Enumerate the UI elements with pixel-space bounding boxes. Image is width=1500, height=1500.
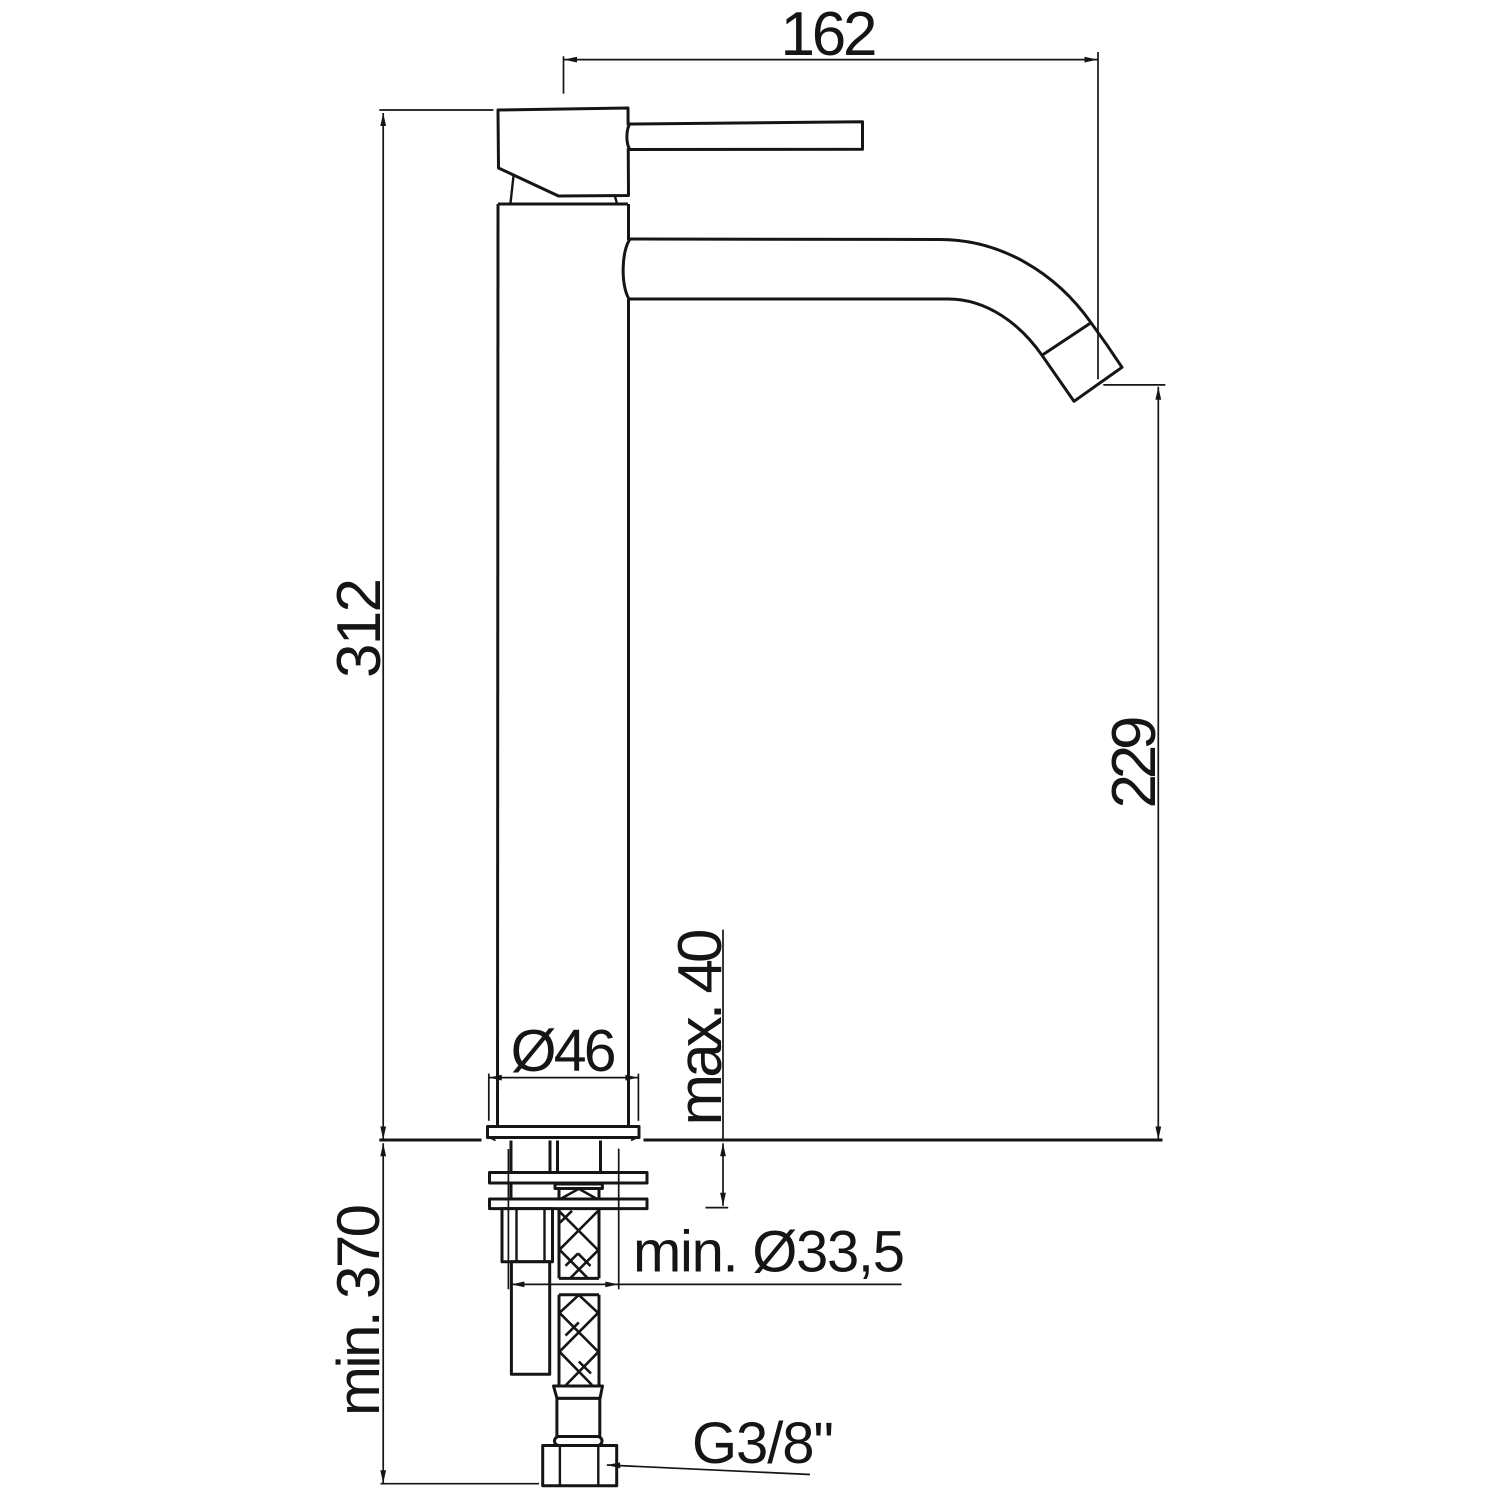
svg-text:162: 162: [781, 0, 878, 69]
svg-text:min. Ø33,5: min. Ø33,5: [633, 1220, 905, 1285]
svg-text:229: 229: [1100, 716, 1169, 809]
svg-text:Ø46: Ø46: [511, 1018, 617, 1084]
svg-text:min. 370: min. 370: [325, 1204, 392, 1416]
svg-text:max. 40: max. 40: [666, 929, 735, 1126]
svg-text:312: 312: [325, 578, 394, 678]
svg-text:G3/8": G3/8": [692, 1411, 834, 1476]
